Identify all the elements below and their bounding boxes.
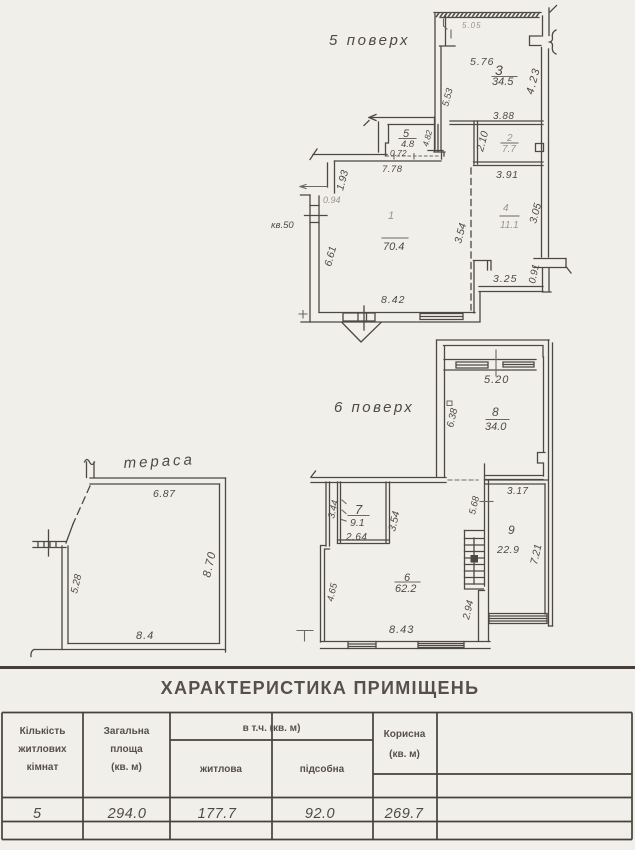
svg-text:підсобна: підсобна (300, 763, 345, 775)
svg-text:в т.ч. (кв. м): в т.ч. (кв. м) (243, 723, 301, 734)
svg-text:площа: площа (110, 744, 143, 755)
svg-text:2: 2 (506, 133, 513, 144)
svg-text:177.7: 177.7 (198, 806, 237, 822)
svg-text:7: 7 (355, 502, 363, 517)
svg-text:5.20: 5.20 (484, 374, 509, 386)
svg-text:2.64: 2.64 (345, 532, 367, 543)
svg-text:8.42: 8.42 (381, 294, 405, 306)
svg-text:житлових: житлових (17, 744, 67, 755)
svg-text:11.1: 11.1 (500, 220, 519, 231)
svg-text:житлова: житлова (199, 764, 242, 775)
svg-text:(кв. м): (кв. м) (389, 749, 420, 760)
svg-text:1: 1 (388, 210, 394, 222)
svg-text:0.94: 0.94 (323, 195, 341, 205)
svg-text:6.87: 6.87 (153, 488, 176, 500)
svg-text:7.7: 7.7 (502, 144, 516, 155)
svg-text:5: 5 (33, 806, 42, 822)
svg-text:4: 4 (503, 203, 509, 214)
svg-text:8.4: 8.4 (136, 630, 154, 642)
svg-text:8.43: 8.43 (389, 624, 414, 636)
svg-text:5 поверх: 5 поверх (329, 32, 410, 49)
svg-text:кімнат: кімнат (27, 762, 59, 773)
svg-text:3.91: 3.91 (496, 169, 518, 181)
svg-text:3.25: 3.25 (493, 273, 517, 285)
svg-text:9.1: 9.1 (350, 517, 365, 529)
svg-text:кв.50: кв.50 (271, 220, 294, 231)
svg-text:0.72: 0.72 (390, 148, 407, 158)
svg-text:22.9: 22.9 (496, 544, 519, 556)
svg-text:92.0: 92.0 (305, 806, 335, 822)
svg-text:62.2: 62.2 (395, 583, 416, 595)
svg-text:7.78: 7.78 (382, 164, 403, 175)
svg-text:70.4: 70.4 (383, 241, 404, 253)
svg-text:Кількість: Кількість (20, 726, 66, 737)
svg-text:(кв. м): (кв. м) (111, 762, 142, 773)
svg-text:34.0: 34.0 (485, 421, 507, 433)
svg-text:269.7: 269.7 (384, 806, 424, 822)
svg-text:ХАРАКТЕРИСТИКА ПРИМІЩЕНЬ: ХАРАКТЕРИСТИКА ПРИМІЩЕНЬ (161, 678, 480, 698)
svg-text:294.0: 294.0 (107, 806, 147, 822)
svg-text:Корисна: Корисна (384, 729, 426, 740)
svg-text:34.5: 34.5 (492, 76, 514, 88)
svg-text:3.17: 3.17 (507, 486, 528, 497)
svg-text:3.88: 3.88 (493, 111, 514, 122)
svg-text:8: 8 (492, 405, 499, 419)
svg-text:Загальна: Загальна (104, 726, 150, 737)
svg-text:5.05: 5.05 (462, 21, 482, 30)
svg-text:9: 9 (508, 523, 515, 537)
svg-text:5.76: 5.76 (470, 56, 494, 68)
svg-text:6 поверх: 6 поверх (334, 399, 414, 416)
